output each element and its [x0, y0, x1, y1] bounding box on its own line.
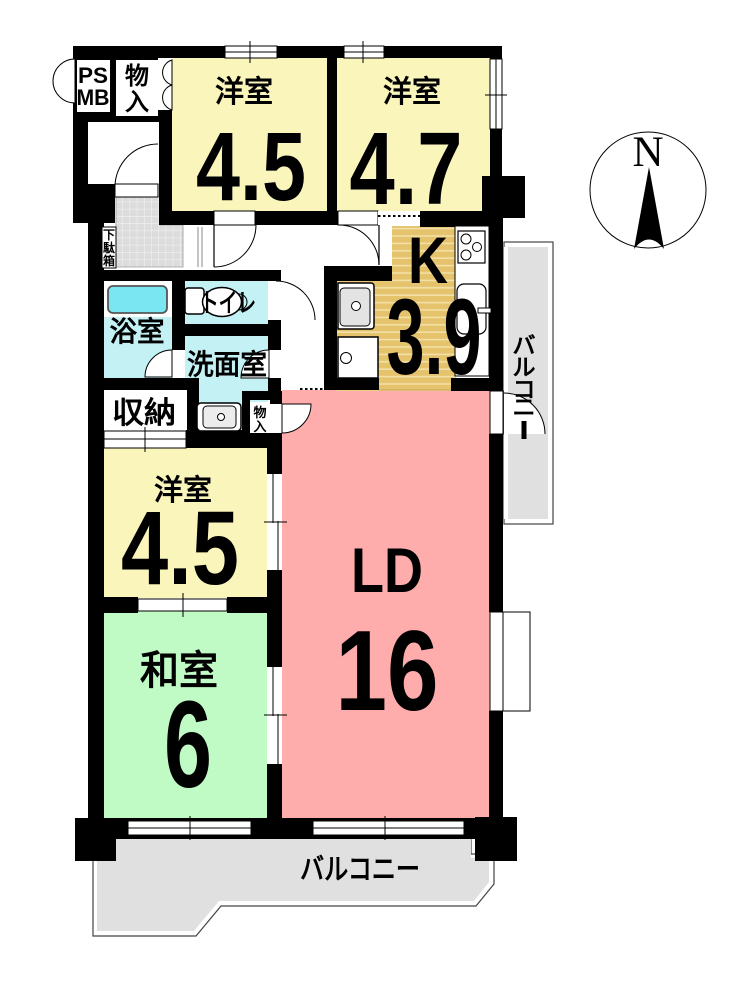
- svg-text:4.5: 4.5: [121, 490, 239, 607]
- svg-text:下: 下: [103, 228, 115, 242]
- svg-text:物: 物: [125, 63, 149, 90]
- svg-text:洋室: 洋室: [383, 75, 441, 109]
- svg-text:4.5: 4.5: [196, 112, 306, 221]
- svg-text:6: 6: [164, 677, 212, 814]
- svg-text:箱: 箱: [103, 253, 115, 268]
- svg-text:駄: 駄: [103, 240, 116, 255]
- svg-text:浴室: 浴室: [110, 315, 165, 347]
- svg-text:16: 16: [336, 608, 439, 735]
- svg-text:4.7: 4.7: [350, 111, 463, 226]
- svg-text:LD: LD: [351, 536, 423, 606]
- svg-text:入: 入: [125, 89, 149, 116]
- svg-text:N: N: [632, 129, 663, 176]
- svg-text:バルコニー: バルコニー: [300, 854, 420, 886]
- svg-text:3.9: 3.9: [387, 276, 482, 397]
- svg-text:MB: MB: [77, 85, 110, 110]
- svg-text:物: 物: [253, 405, 266, 420]
- svg-text:収納: 収納: [112, 397, 176, 430]
- svg-text:洋室: 洋室: [215, 75, 273, 109]
- svg-text:ニ: ニ: [513, 394, 536, 420]
- svg-text:洗面室: 洗面室: [187, 348, 267, 380]
- svg-text:入: 入: [253, 419, 266, 434]
- svg-text:トイレ: トイレ: [200, 288, 256, 318]
